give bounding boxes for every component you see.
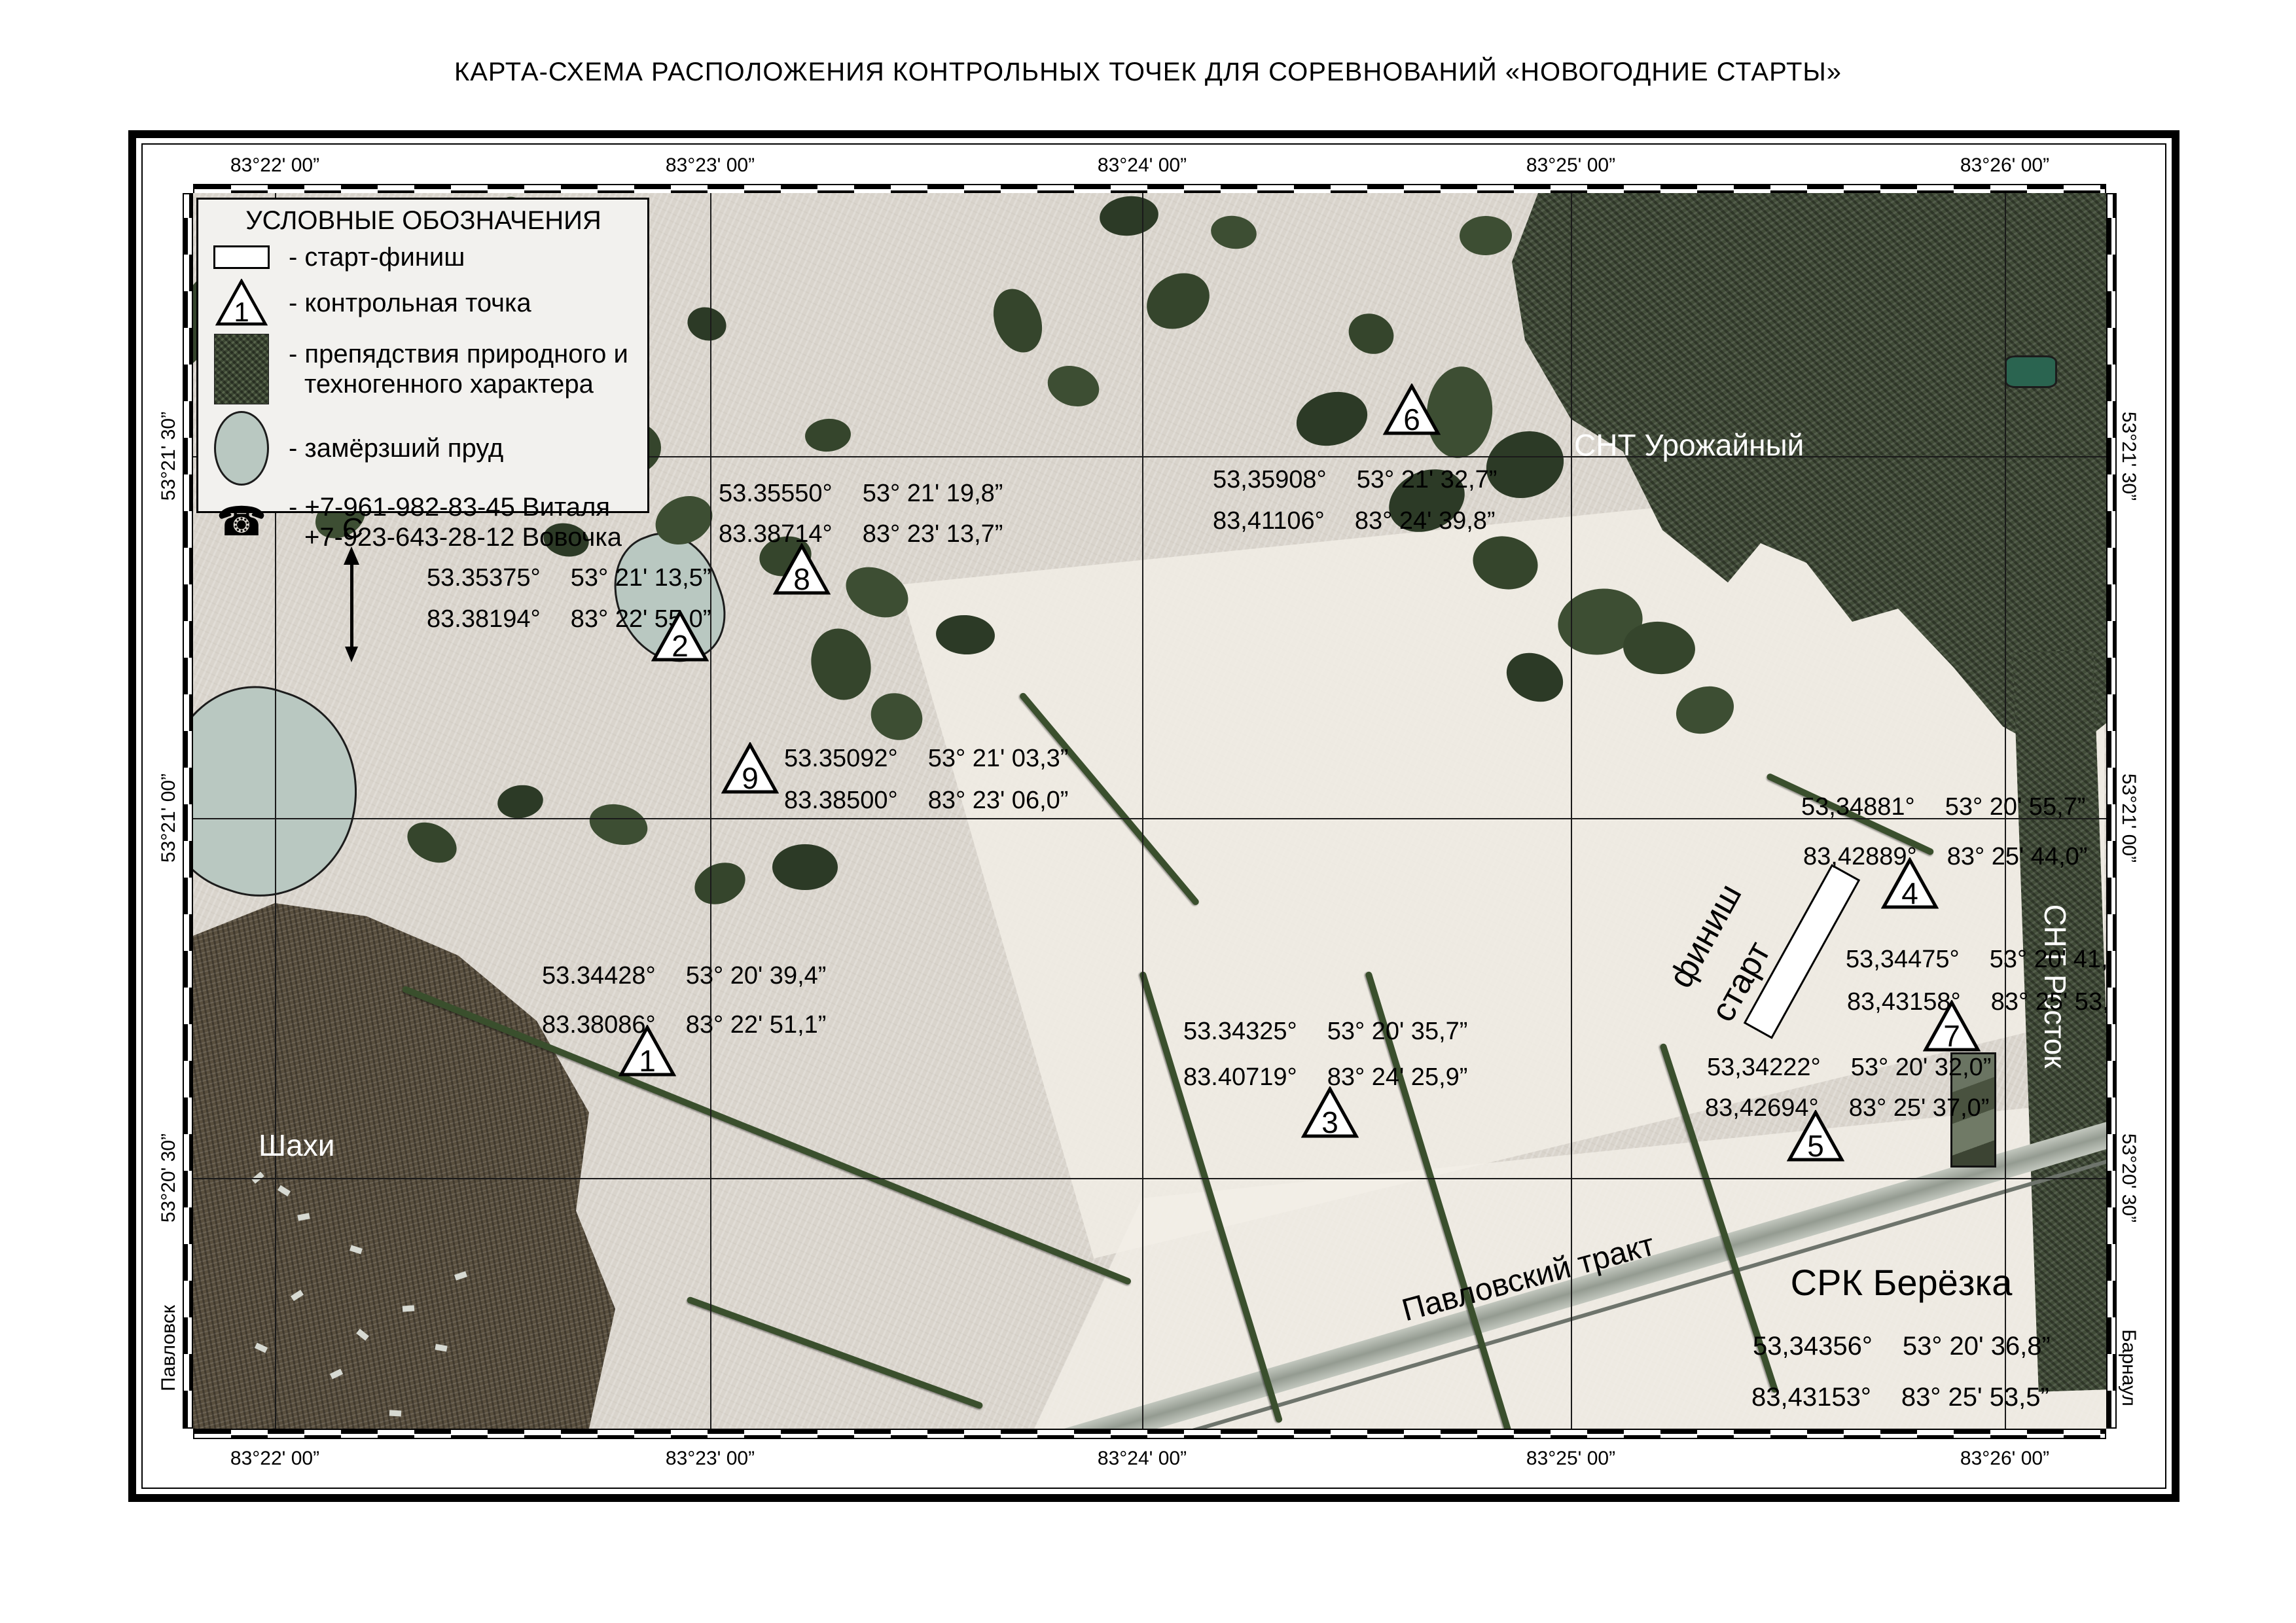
village-pond-green: [2005, 355, 2057, 388]
lon-label-bottom-2: 83°23' 00”: [638, 1448, 782, 1470]
lon-label-top-5: 83°26' 00”: [1933, 154, 2077, 177]
north-arrow-shaft: [350, 563, 353, 649]
srk-coords-line1: 53,34356°53° 20' 36,8”: [1753, 1332, 2051, 1361]
scale-ruler-bottom: [193, 1429, 2106, 1439]
gridline-lat-3: [193, 1178, 2106, 1179]
legend-item-control-point: 1 - контрольная точка: [210, 279, 637, 327]
obstacles-icon: [214, 334, 269, 404]
gridline-lon-2: [710, 193, 711, 1429]
lon-label-bottom-3: 83°24' 00”: [1070, 1448, 1214, 1470]
page-title: КАРТА-СХЕМА РАСПОЛОЖЕНИЯ КОНТРОЛЬНЫХ ТОЧ…: [0, 58, 2296, 87]
cp4-marker: 4: [1881, 857, 1939, 910]
scale-ruler-left: [183, 193, 193, 1429]
place-label-shahi: Шахи: [259, 1128, 334, 1163]
place-label-srk-beryozka: СРК Берёзка: [1764, 1261, 2039, 1304]
cp2-coords-line1: 53.35375°53° 21' 13,5”: [427, 564, 711, 592]
control-point-icon: 1: [215, 279, 268, 327]
place-label-barnaul: Барнаул: [2117, 1296, 2140, 1440]
cp1-coords-line1: 53.34428°53° 20' 39,4”: [542, 962, 826, 990]
gridline-lon-3: [1142, 193, 1143, 1429]
cp3-marker: 3: [1301, 1086, 1359, 1139]
cp9-coords-line2: 83.38500°83° 23' 06,0”: [784, 787, 1068, 815]
lat-label-left-3: 53°20' 30”: [158, 1106, 180, 1250]
legend-item-obstacles: - препядствия природного и техногенного …: [210, 334, 637, 404]
cp1-marker: 1: [619, 1025, 676, 1077]
cp9-marker: 9: [721, 742, 779, 794]
lon-label-bottom-5: 83°26' 00”: [1933, 1448, 2077, 1470]
cp6-coords-line2: 83,41106°83° 24' 39,8”: [1213, 507, 1496, 535]
lat-label-right-2: 53°21' 00”: [2117, 746, 2140, 890]
lon-label-top-4: 83°25' 00”: [1499, 154, 1643, 177]
cp5-coords-line1: 53,34222°53° 20' 32,0”: [1707, 1054, 1991, 1082]
lon-label-bottom-1: 83°22' 00”: [203, 1448, 347, 1470]
north-arrow-base: [345, 647, 358, 662]
legend-item-start-finish: - старт-финиш: [210, 242, 637, 272]
lat-label-left-2: 53°21' 00”: [158, 746, 180, 890]
legend: УСЛОВНЫЕ ОБОЗНАЧЕНИЯ - старт-финиш 1 - к…: [196, 198, 649, 513]
cp7-marker: 7: [1923, 1000, 1981, 1052]
place-label-snt-rostok: СНТ Росток: [2037, 849, 2073, 1124]
cp5-marker: 5: [1787, 1110, 1844, 1162]
map-sheet: { "title": "КАРТА-СХЕМА РАСПОЛОЖЕНИЯ КОН…: [0, 0, 2296, 1623]
legend-title: УСЛОВНЫЕ ОБОЗНАЧЕНИЯ: [210, 206, 637, 236]
gridline-lon-4: [1571, 193, 1572, 1429]
place-label-pavlovsk: Павловск: [158, 1276, 180, 1420]
cp8-coords-line1: 53.35550°53° 21' 19,8”: [719, 480, 1003, 508]
cp5-coords-line2: 83,42694°83° 25' 37,0”: [1705, 1094, 1989, 1122]
cp2-marker: 2: [651, 610, 709, 662]
lon-label-top-1: 83°22' 00”: [203, 154, 347, 177]
lon-label-top-2: 83°23' 00”: [638, 154, 782, 177]
cp9-coords-line1: 53.35092°53° 21' 03,3”: [784, 745, 1068, 773]
satellite-map: СНТ Урожайный Шахи СНТ Росток Павловский…: [193, 193, 2106, 1429]
scale-ruler-right: [2106, 193, 2117, 1429]
place-label-snt-urozhayny: СНТ Урожайный: [1574, 427, 1804, 463]
cp3-coords-line1: 53.34325°53° 20' 35,7”: [1183, 1018, 1467, 1046]
cp6-marker: 6: [1383, 383, 1441, 436]
cp4-coords-line1: 53,34881°53° 20' 55,7”: [1801, 793, 2085, 821]
frozen-pond-icon: [214, 411, 269, 486]
phone-icon: ☎: [216, 502, 266, 543]
lat-label-left-1: 53°21' 30”: [158, 384, 180, 528]
cp6-coords-line1: 53,35908°53° 21' 32,7”: [1213, 466, 1497, 494]
cp7-coords-line1: 53,34475°53° 20' 41,1”: [1846, 946, 2106, 974]
cp1-coords-line2: 83.38086°83° 22' 51,1”: [542, 1011, 826, 1039]
cp8-coords-line2: 83.38714°83° 23' 13,7”: [719, 520, 1003, 548]
legend-item-pond: - замёрзший пруд: [210, 411, 637, 486]
lat-label-right-3: 53°20' 30”: [2117, 1106, 2140, 1250]
start-finish-icon: [213, 245, 270, 269]
cp8-marker: 8: [773, 543, 831, 596]
cp4-coords-line2: 83,42889°83° 25' 44,0”: [1803, 843, 2087, 871]
lat-label-right-1: 53°21' 30”: [2117, 384, 2140, 528]
lon-label-top-3: 83°24' 00”: [1070, 154, 1214, 177]
lon-label-bottom-4: 83°25' 00”: [1499, 1448, 1643, 1470]
legend-item-phones: ☎ - +7-961-982-83-45 Виталя +7-923-643-2…: [210, 492, 637, 552]
srk-coords-line2: 83,43153°83° 25' 53,5”: [1751, 1383, 2049, 1412]
